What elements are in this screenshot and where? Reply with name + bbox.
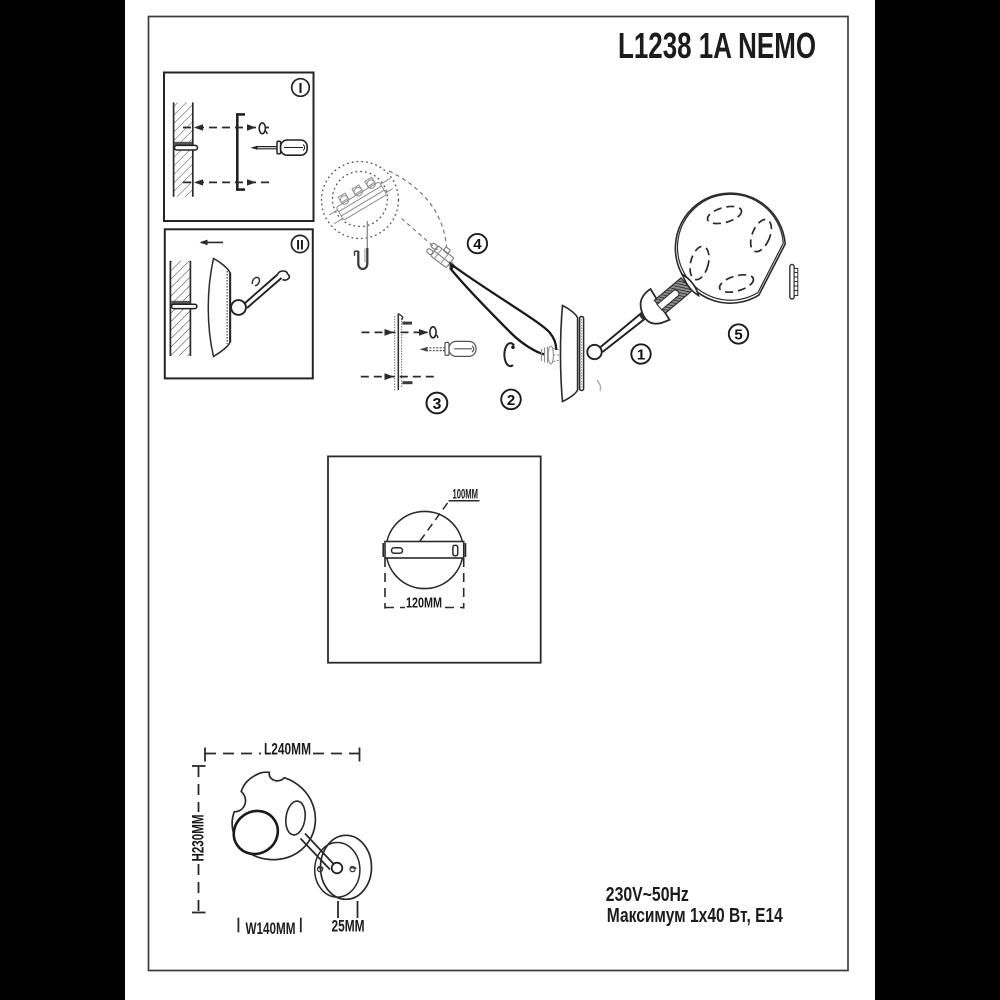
svg-text:II: II — [296, 236, 304, 252]
svg-text:100MM: 100MM — [453, 487, 479, 502]
svg-text:W140MM: W140MM — [246, 920, 296, 938]
svg-text:3: 3 — [432, 396, 441, 413]
svg-text:25MM: 25MM — [332, 917, 365, 935]
svg-text:H230MM: H230MM — [190, 815, 208, 862]
svg-text:5: 5 — [734, 327, 742, 344]
svg-text:I: I — [298, 81, 302, 97]
svg-text:L1238 1A NEMO: L1238 1A NEMO — [618, 25, 816, 66]
svg-text:4: 4 — [473, 236, 482, 253]
svg-text:120MM: 120MM — [406, 596, 442, 612]
svg-text:2: 2 — [507, 392, 515, 409]
svg-text:230V~50Hz: 230V~50Hz — [606, 884, 689, 906]
svg-text:Максимум 1x40 Вт, E14: Максимум 1x40 Вт, E14 — [607, 905, 784, 927]
svg-text:1: 1 — [637, 347, 645, 364]
svg-text:L240MM: L240MM — [264, 741, 311, 759]
